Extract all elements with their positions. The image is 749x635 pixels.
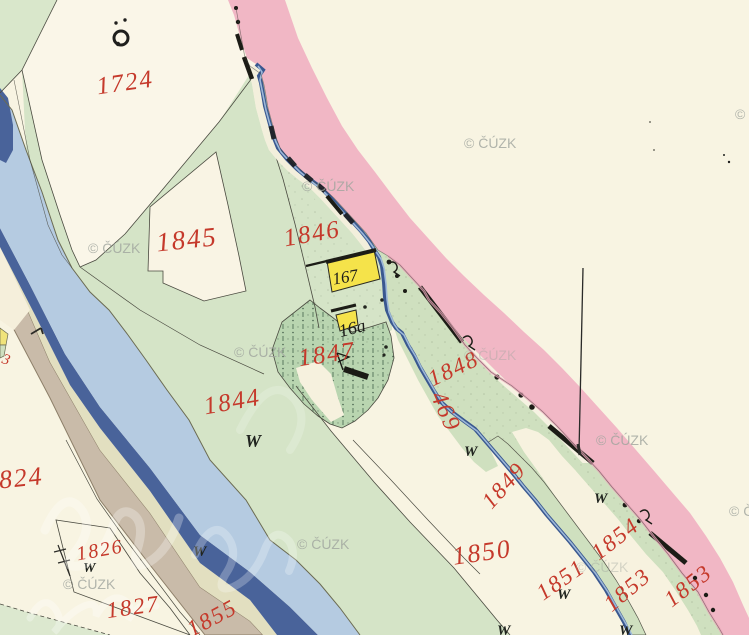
svg-text:W: W <box>594 491 609 507</box>
svg-text:© Č: © Č <box>735 106 749 122</box>
svg-text:© ČÚZK: © ČÚZK <box>596 432 649 448</box>
svg-text:W: W <box>464 444 479 460</box>
svg-text:W: W <box>245 431 263 451</box>
svg-text:© ČÚZK: © ČÚZK <box>63 576 116 592</box>
svg-text:W: W <box>497 623 512 635</box>
svg-text:© ČÚZK: © ČÚZK <box>297 536 350 552</box>
svg-text:© ČÚZK: © ČÚZK <box>302 178 355 194</box>
svg-text:© Č: © Č <box>729 503 749 519</box>
svg-text:1845: 1845 <box>155 221 219 257</box>
svg-text:© ČÚZK: © ČÚZK <box>234 344 287 360</box>
svg-text:© ČÚZK: © ČÚZK <box>464 135 517 151</box>
svg-text:© ČÚZK: © ČÚZK <box>576 559 629 575</box>
svg-text:© ČÚZK: © ČÚZK <box>88 240 141 256</box>
svg-text:© ČÚZK: © ČÚZK <box>464 347 517 363</box>
svg-text:W: W <box>619 623 634 635</box>
